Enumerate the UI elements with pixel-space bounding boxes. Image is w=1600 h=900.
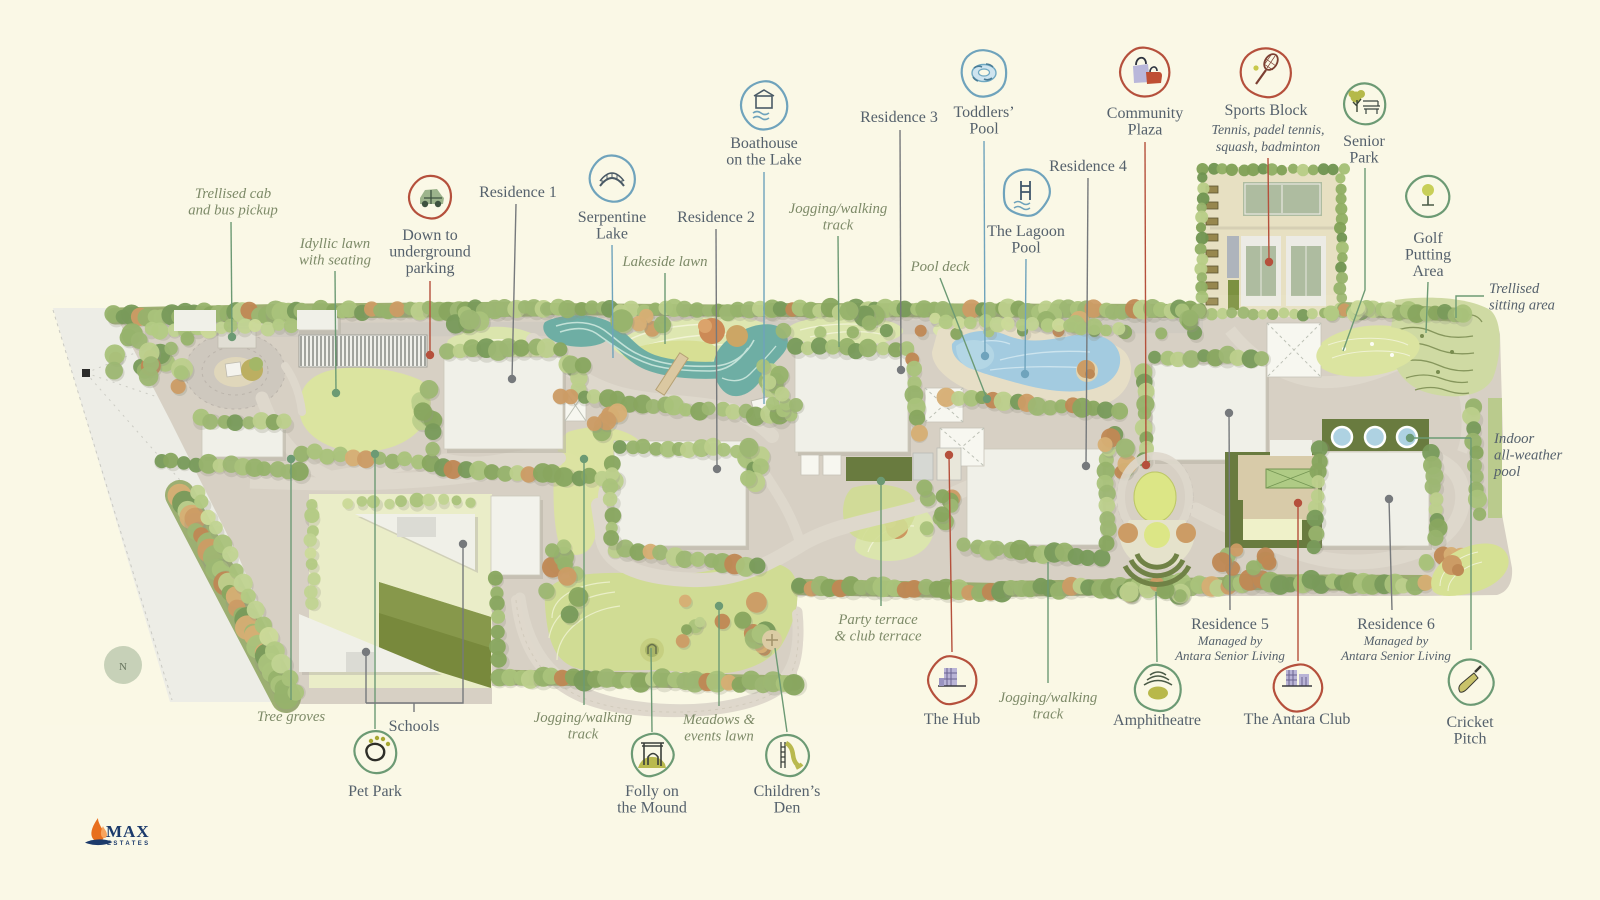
svg-text:Schools: Schools <box>389 718 440 735</box>
svg-text:Residence 4: Residence 4 <box>1049 158 1127 175</box>
svg-text:Meadows &events lawn: Meadows &events lawn <box>682 712 755 745</box>
svg-text:Residence 5: Residence 5 <box>1191 616 1269 633</box>
svg-text:Folly onthe Mound: Folly onthe Mound <box>617 783 687 817</box>
svg-text:ESTATES: ESTATES <box>107 841 151 847</box>
svg-text:Idyllic lawnwith seating: Idyllic lawnwith seating <box>299 236 371 269</box>
svg-text:Pool deck: Pool deck <box>910 259 970 275</box>
svg-text:Party terrace& club terrace: Party terrace& club terrace <box>834 612 922 645</box>
svg-text:Residence 6: Residence 6 <box>1357 616 1435 633</box>
svg-text:Pet Park: Pet Park <box>348 783 402 800</box>
svg-text:Tree groves: Tree groves <box>257 709 326 725</box>
svg-text:Lakeside lawn: Lakeside lawn <box>621 254 707 270</box>
svg-text:Boathouseon the Lake: Boathouseon the Lake <box>726 135 802 169</box>
svg-text:The Antara Club: The Antara Club <box>1244 711 1351 728</box>
svg-text:Trellised caband bus pickup: Trellised caband bus pickup <box>188 186 278 219</box>
svg-text:Sports Block: Sports Block <box>1224 102 1307 119</box>
svg-text:Residence 1: Residence 1 <box>479 184 557 201</box>
svg-text:Residence 2: Residence 2 <box>677 209 755 226</box>
svg-text:Residence 3: Residence 3 <box>860 109 938 126</box>
svg-text:The Hub: The Hub <box>924 711 980 728</box>
svg-text:Amphitheatre: Amphitheatre <box>1113 712 1201 729</box>
svg-text:MAX: MAX <box>106 822 150 841</box>
